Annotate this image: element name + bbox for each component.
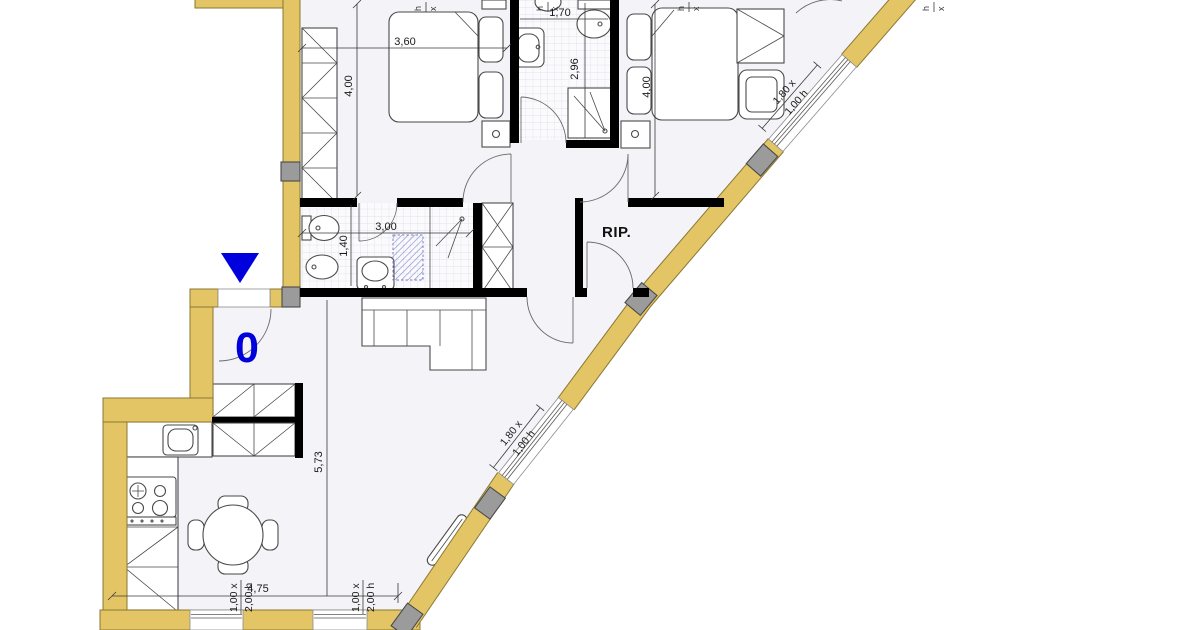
window-kitchen-right — [313, 610, 367, 630]
dim-bedroom1-width: 3,60 — [394, 36, 415, 48]
edge-mark-x: x — [428, 6, 438, 11]
entry-number: 0 — [235, 324, 259, 372]
window-dim-text: 2,00 h — [365, 583, 377, 612]
window-kitchen-left — [190, 610, 243, 630]
dim-bathroom1-depth: 2,96 — [569, 58, 581, 79]
edge-mark-x: x — [691, 6, 701, 11]
edge-mark-h: h — [535, 6, 545, 11]
shower-tray — [393, 235, 423, 280]
dim-bedroom1-depth: 4,00 — [343, 75, 355, 96]
pillar — [282, 287, 300, 307]
toilet-icon — [302, 216, 339, 241]
window-dim-text: 1,00 x — [228, 583, 240, 612]
edge-mark-h: h — [413, 6, 423, 11]
shower-icon — [568, 88, 612, 138]
dim-bathroom2-width: 3,00 — [375, 221, 396, 233]
kitchen-sink-icon — [163, 425, 198, 455]
dim-bathroom2-depth: 1,40 — [338, 235, 350, 256]
window-dim-text: 1,00 x — [350, 583, 362, 612]
hall-wardrobe — [482, 203, 513, 292]
window-dim-text: 2,00 h — [243, 583, 255, 612]
dim-bedroom2-depth: 4,00 — [641, 76, 653, 97]
nightstand — [621, 121, 650, 148]
edge-mark-x: x — [936, 6, 946, 11]
wardrobe — [302, 28, 337, 203]
sink-icon — [357, 257, 394, 290]
pillar — [281, 162, 300, 181]
entry-opening — [218, 289, 270, 307]
edge-mark-x: x — [550, 6, 560, 11]
edge-mark-h: h — [921, 6, 931, 11]
bidet-icon — [306, 255, 338, 279]
dim-living-depth: 5,73 — [313, 451, 325, 472]
floor-plan: 3,60 4,00 1,70 2,96 4,00 3,00 1,40 5,73 … — [0, 0, 1200, 630]
storage-room-label: RIP. — [602, 224, 631, 241]
edge-mark-h: h — [676, 6, 686, 11]
